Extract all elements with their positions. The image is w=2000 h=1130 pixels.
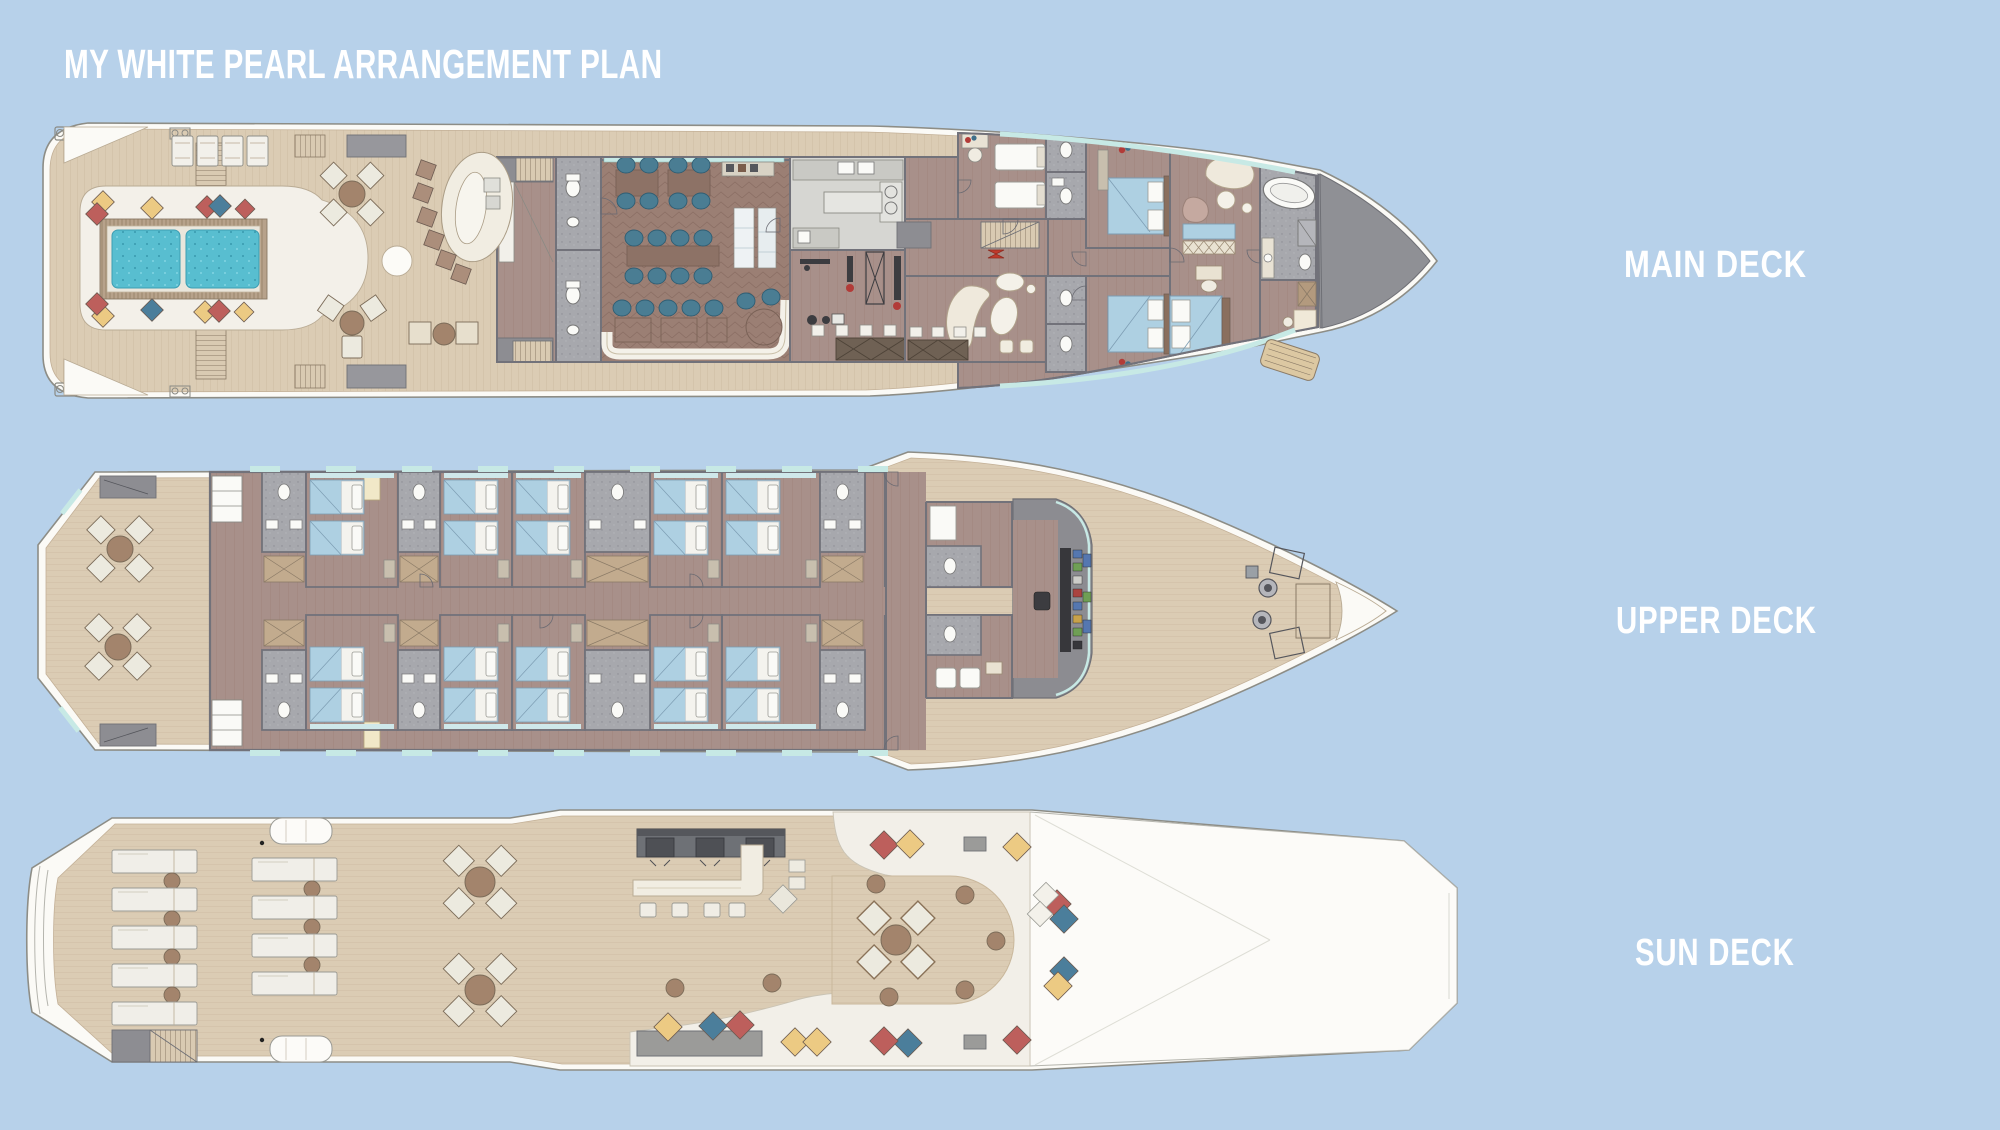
svg-text:SUN DECK: SUN DECK (1635, 931, 1795, 974)
svg-text:MAIN DECK: MAIN DECK (1624, 244, 1807, 286)
svg-text:UPPER DECK: UPPER DECK (1616, 599, 1817, 641)
svg-text:MY WHITE PEARL ARRANGEMENT PLA: MY WHITE PEARL ARRANGEMENT PLAN (64, 41, 662, 87)
